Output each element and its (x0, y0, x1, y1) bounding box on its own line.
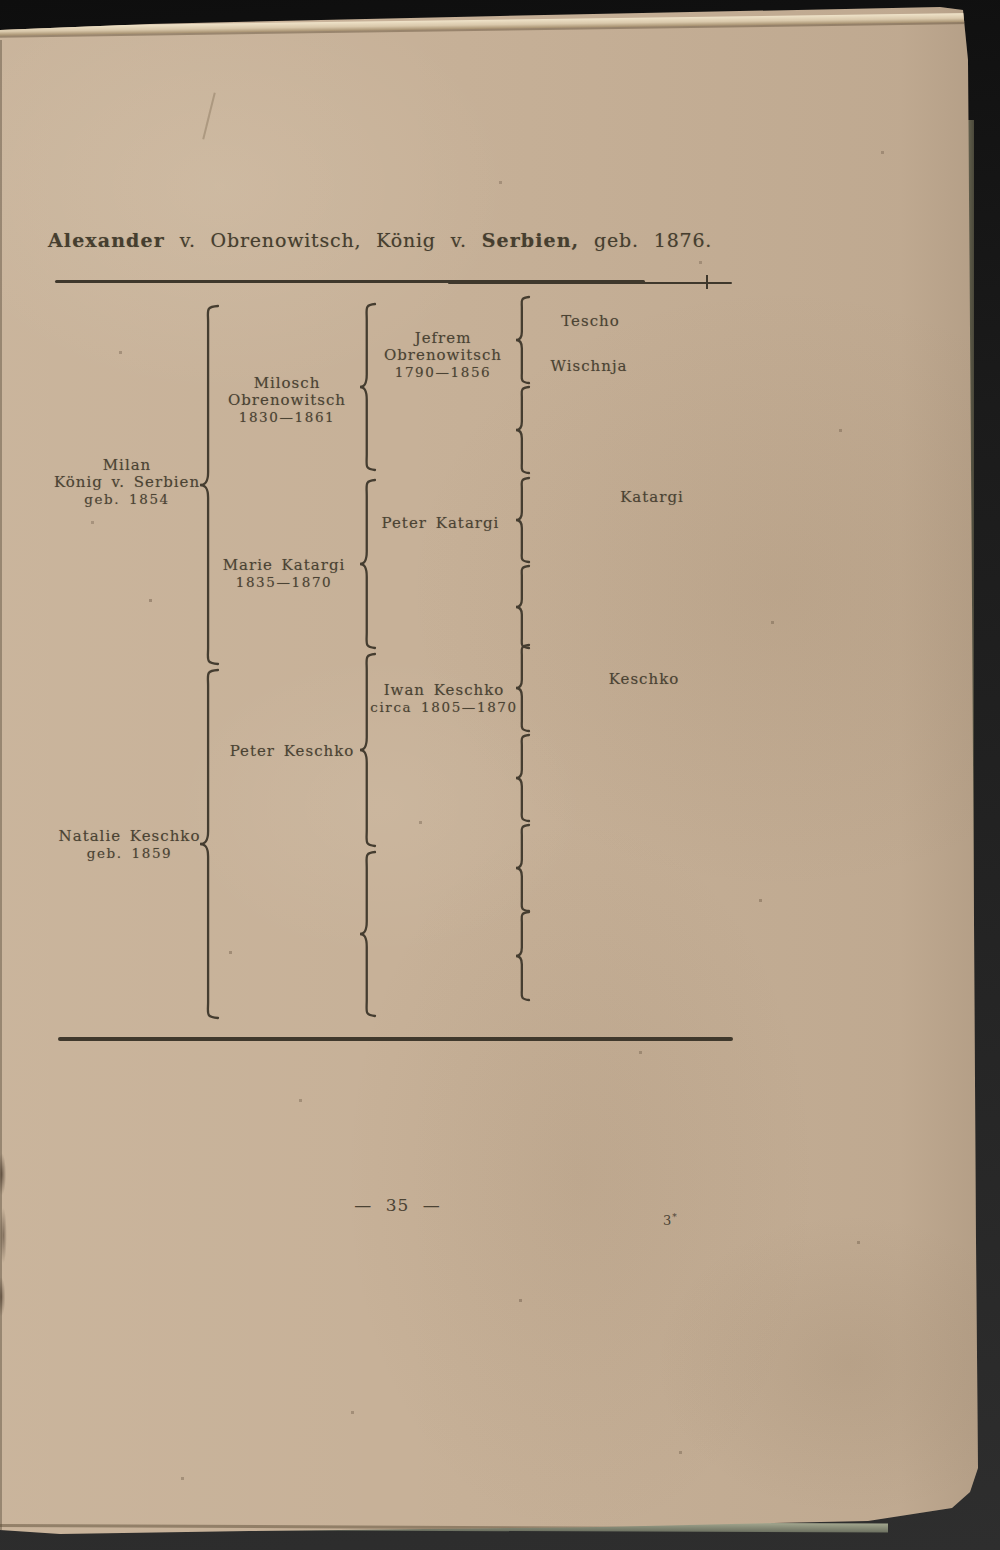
person-milan: Milan König v. Serbien geb. 1854 (47, 457, 207, 508)
person-name: Wischnja (548, 358, 630, 375)
printer-signature-mark: 3* (663, 1212, 678, 1228)
person-dates: geb. 1859 (52, 845, 207, 862)
signature-star: * (672, 1212, 678, 1222)
person-name: Peter Katargi (368, 515, 513, 532)
page-number: — 35 — (350, 1195, 445, 1215)
person-peter-keschko: Peter Keschko (213, 743, 371, 760)
person-iwan: Iwan Keschko circa 1805—1870 (365, 682, 523, 716)
title-subject-name: Alexander (48, 229, 165, 251)
person-katargi: Katargi (612, 489, 692, 506)
person-name: Milan (47, 457, 207, 474)
ancestry-brace (360, 852, 375, 1016)
paper-crease (202, 92, 216, 139)
ancestry-brace (360, 480, 375, 648)
person-name: Marie Katargi (208, 557, 360, 574)
ancestry-brace (516, 566, 529, 648)
person-dates: 1835—1870 (208, 574, 360, 591)
bottom-rule (58, 1037, 733, 1041)
title-middle: v. Obrenowitsch, König v. (180, 229, 467, 251)
person-name: Keschko (604, 671, 684, 688)
person-name: Jefrem Obrenowitsch (362, 330, 524, 364)
person-dates: 1830—1861 (203, 409, 371, 426)
ancestry-brace (516, 387, 529, 473)
ancestry-brace (516, 825, 529, 911)
person-dates: circa 1805—1870 (365, 699, 523, 716)
person-name: Iwan Keschko (365, 682, 523, 699)
person-name: Peter Keschko (213, 743, 371, 760)
person-title: König v. Serbien (47, 474, 207, 491)
person-name: Tescho (553, 313, 628, 330)
person-milosch: Milosch Obrenowitsch 1830—1861 (203, 375, 371, 426)
ink-smudge (0, 1148, 11, 1323)
paper-speckles (0, 0, 1, 1)
book-scan: Alexander v. Obrenowitsch, König v. Serb… (0, 0, 1000, 1550)
signature-number: 3 (663, 1213, 672, 1228)
person-keschko: Keschko (604, 671, 684, 688)
top-rule-segment (448, 282, 732, 284)
person-name: Katargi (612, 489, 692, 506)
person-tescho: Tescho (553, 313, 628, 330)
ancestry-brace (516, 735, 529, 821)
book-page: Alexander v. Obrenowitsch, König v. Serb… (0, 0, 1000, 1550)
person-dates: 1790—1856 (362, 364, 524, 381)
title-country: Serbien, (482, 229, 580, 251)
person-natalie: Natalie Keschko geb. 1859 (52, 828, 207, 862)
person-name: Milosch Obrenowitsch (203, 375, 371, 409)
person-name: Natalie Keschko (52, 828, 207, 845)
page-title: Alexander v. Obrenowitsch, König v. Serb… (48, 229, 748, 251)
person-peter-katargi: Peter Katargi (368, 515, 513, 532)
person-marie: Marie Katargi 1835—1870 (208, 557, 360, 591)
top-rule-tick (706, 275, 708, 289)
ancestry-brace (516, 912, 529, 1000)
ancestry-brace (516, 478, 529, 562)
title-suffix: geb. 1876. (594, 229, 712, 251)
person-dates: geb. 1854 (47, 491, 207, 508)
person-wischnja: Wischnja (548, 358, 630, 375)
person-jefrem: Jefrem Obrenowitsch 1790—1856 (362, 330, 524, 381)
